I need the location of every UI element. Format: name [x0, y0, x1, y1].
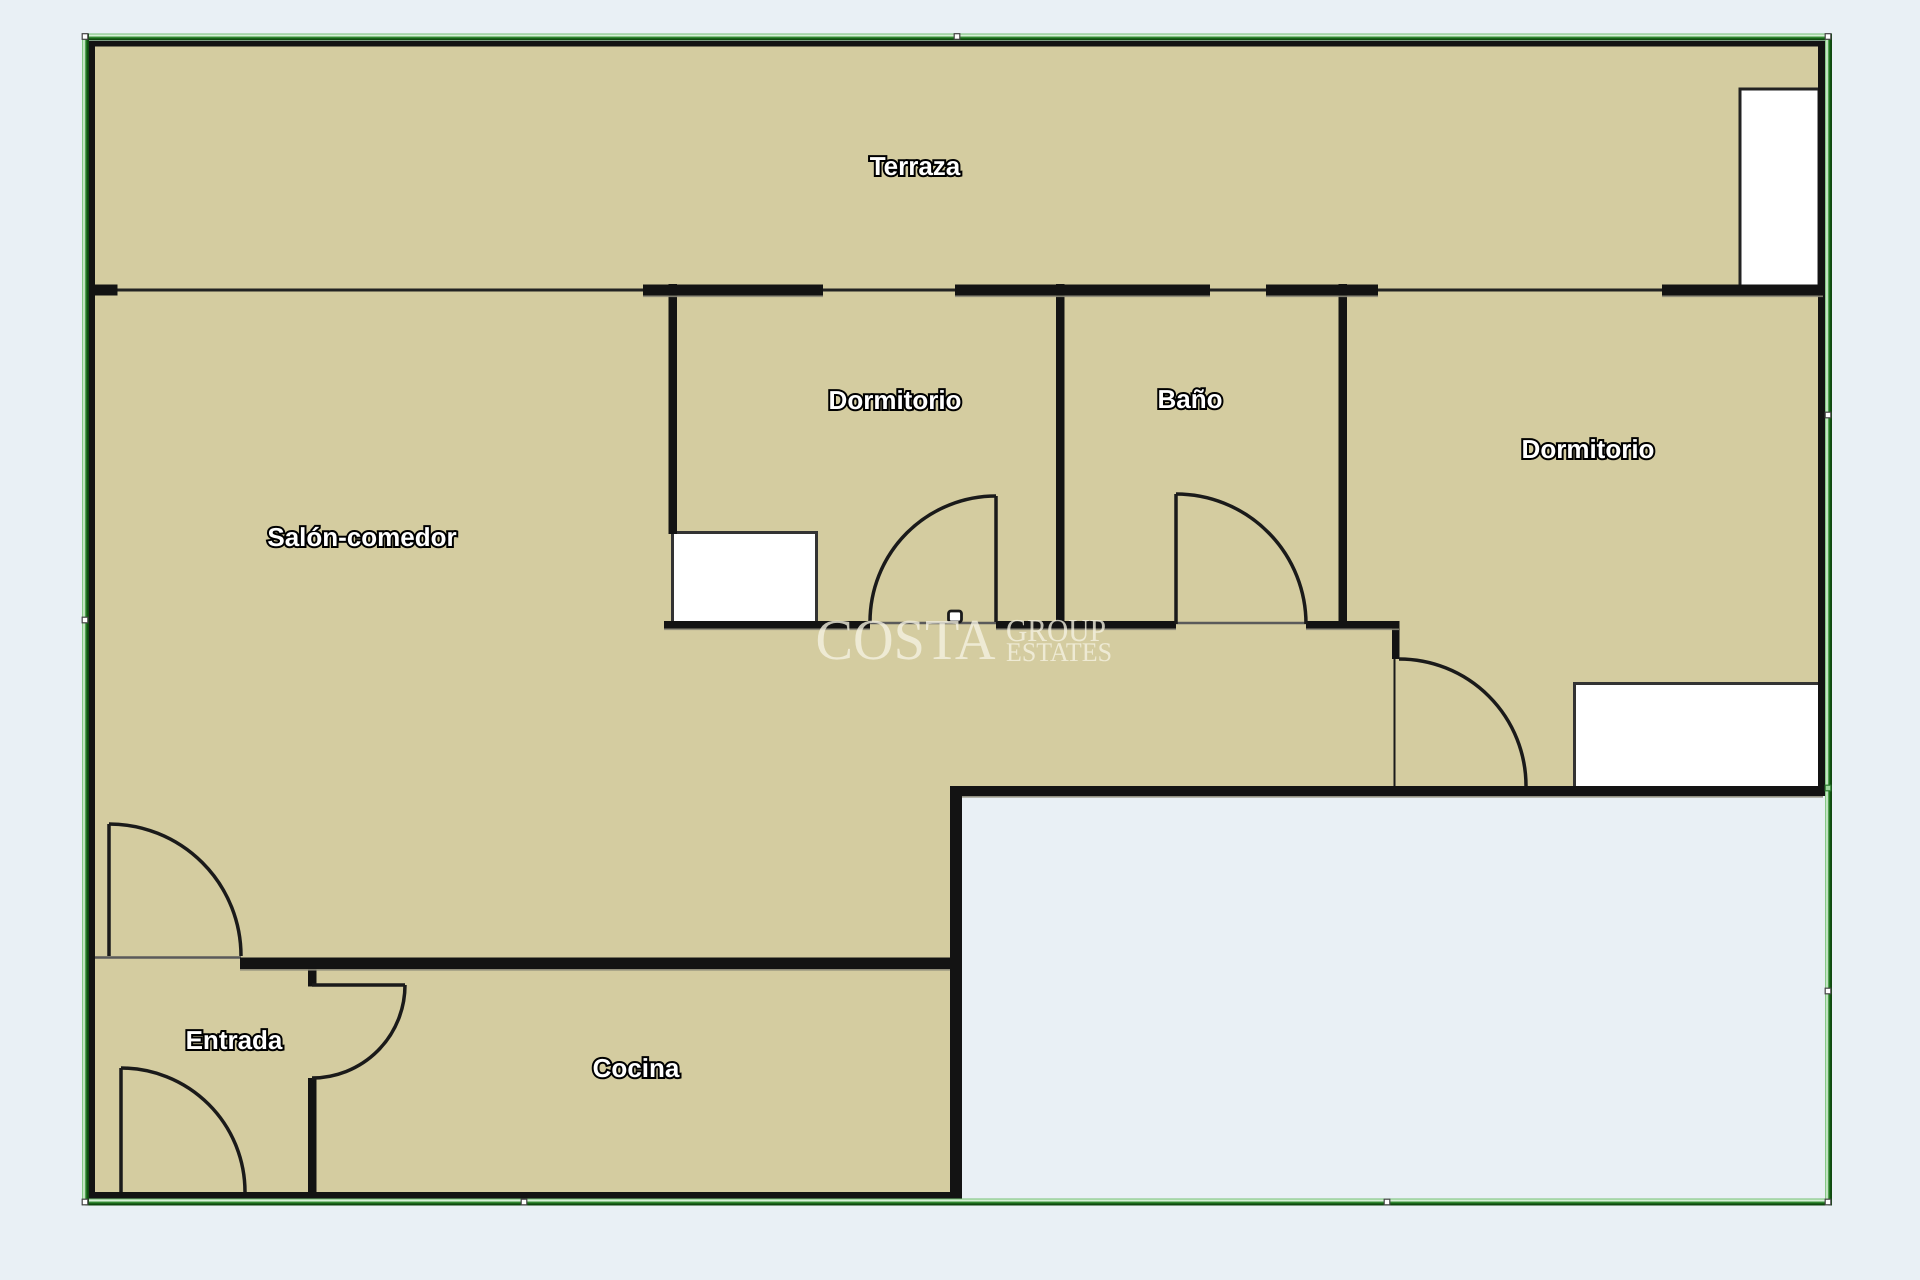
svg-text:Dormitorio: Dormitorio [1522, 434, 1655, 464]
svg-text:Baño: Baño [1158, 384, 1223, 414]
svg-text:ESTATES: ESTATES [1006, 637, 1112, 667]
svg-text:Salón-comedor: Salón-comedor [267, 522, 456, 552]
svg-text:Dormitorio: Dormitorio [829, 385, 962, 415]
svg-text:Cocina: Cocina [593, 1053, 680, 1083]
svg-text:COSTA: COSTA [816, 607, 996, 672]
svg-text:Terraza: Terraza [870, 151, 961, 181]
svg-text:Entrada: Entrada [186, 1025, 283, 1055]
